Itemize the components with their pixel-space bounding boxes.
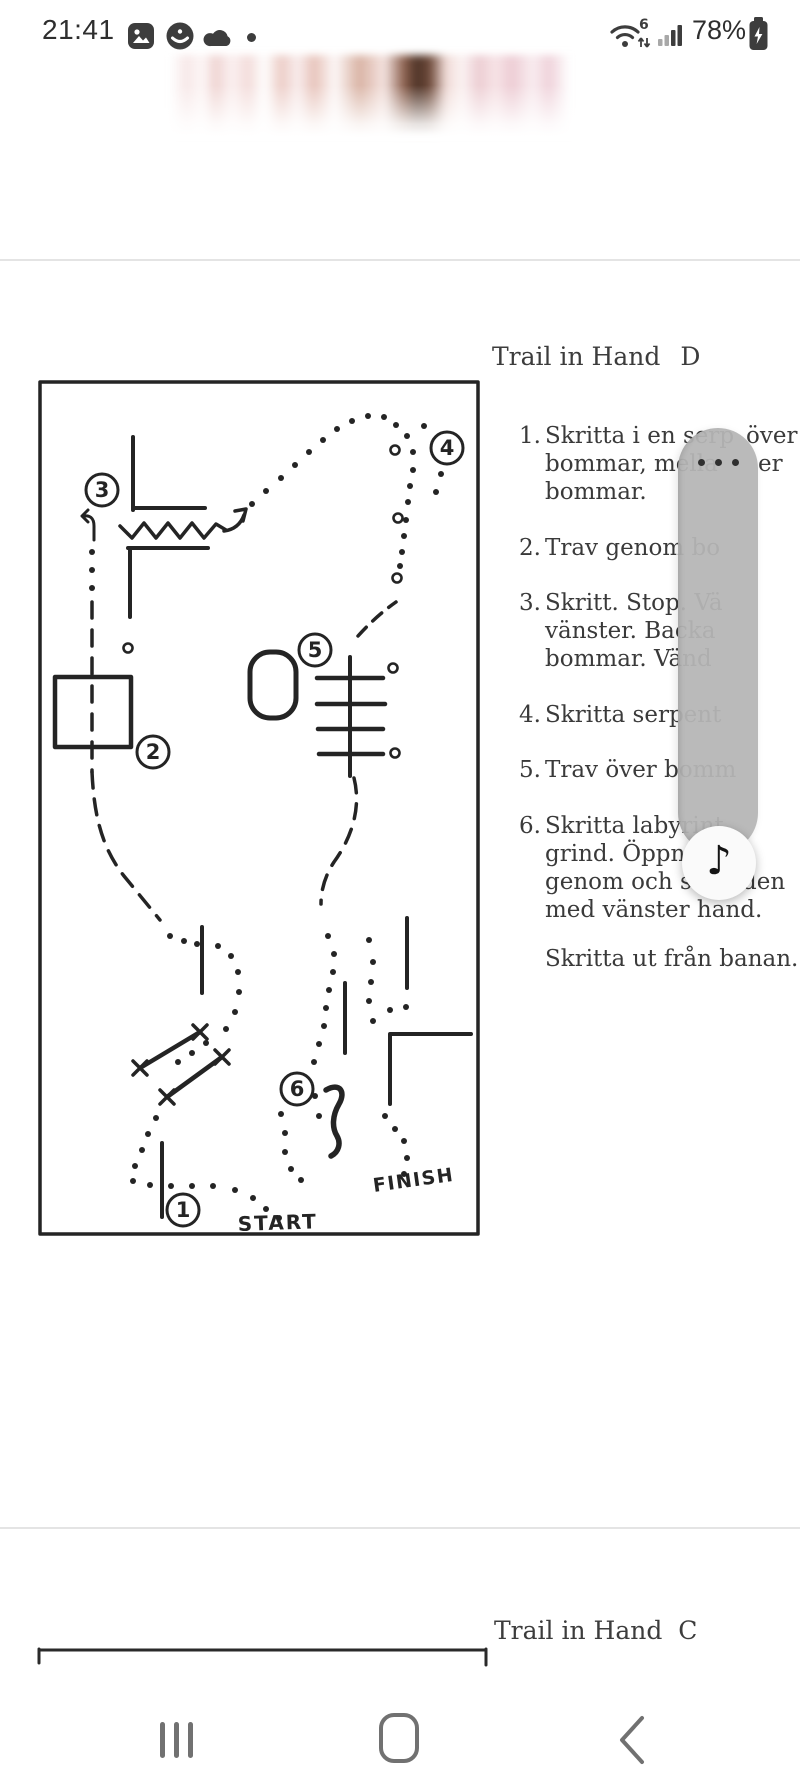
start-label: START (237, 1209, 318, 1236)
photo-fade (150, 55, 602, 141)
obstacle-marker-1: 1 (167, 1194, 199, 1226)
page2-title: Trail in Hand C (494, 1616, 697, 1645)
course-map: 123456 START FINISH (38, 380, 480, 1237)
map-obstacle-5-poles (250, 652, 385, 776)
map-cone-markers (124, 446, 403, 758)
page-title-variant: D (680, 342, 700, 371)
instruction-number: 3. (511, 589, 541, 617)
signal-strength-icon (658, 23, 686, 51)
battery-charging-icon (748, 16, 770, 56)
section-divider (0, 259, 800, 261)
instruction-line: med vänster hand. (545, 896, 762, 924)
map-obstacle-1-poles (133, 1025, 229, 1104)
page2-title-text: Trail in Hand (494, 1616, 662, 1645)
instruction-number: 6. (511, 812, 541, 840)
nav-back-button[interactable] (612, 1712, 648, 1768)
page-title: Trail in HandD (492, 342, 700, 371)
instruction-number: 4. (511, 701, 541, 729)
phone-screen: 21:41 6 78% (0, 0, 800, 1779)
svg-text:6: 6 (639, 17, 649, 33)
svg-text:2: 2 (146, 740, 161, 764)
floating-widget-pill[interactable] (678, 428, 758, 853)
svg-text:1: 1 (176, 1198, 191, 1222)
map-border (40, 382, 478, 1234)
svg-text:3: 3 (95, 478, 110, 502)
page-title-text: Trail in Hand (492, 342, 660, 371)
battery-percent: 78% (692, 15, 746, 46)
nav-home-button[interactable] (379, 1713, 419, 1763)
obstacle-marker-2: 2 (137, 736, 169, 768)
obstacle-marker-3: 3 (86, 474, 118, 506)
more-options-icon[interactable] (698, 459, 742, 466)
obstacle-marker-5: 5 (299, 634, 331, 666)
music-widget-button[interactable]: ♪ (682, 826, 756, 900)
instruction-outro: Skritta ut från banan. (545, 946, 798, 972)
svg-text:4: 4 (440, 436, 455, 460)
more-notifications-dot-icon (247, 33, 256, 42)
svg-text:6: 6 (290, 1077, 305, 1101)
cloud-notification-icon (202, 26, 236, 54)
music-note-icon: ♪ (706, 838, 732, 884)
page2-map-top-border (36, 1646, 490, 1668)
instruction-fragment: över (746, 422, 797, 450)
page-break-divider (0, 1527, 800, 1529)
wifi6-icon: 6 (610, 16, 652, 56)
instruction-fragment: er (758, 450, 783, 478)
gallery-notification-icon (128, 23, 155, 54)
instruction-line: bommar. (545, 478, 647, 506)
page2-title-variant: C (678, 1616, 697, 1645)
obstacle-marker-6: 6 (281, 1073, 313, 1105)
instruction-number: 1. (511, 422, 541, 450)
finish-label: FINISH (372, 1164, 456, 1197)
instruction-number: 5. (511, 756, 541, 784)
svg-text:5: 5 (308, 638, 323, 662)
map-obstacle-3-poles (82, 437, 246, 617)
nav-recents-button[interactable] (160, 1722, 193, 1758)
map-obstacle-6-gate (326, 1087, 342, 1156)
app-notification-icon (166, 22, 195, 55)
obstacle-marker-4: 4 (431, 432, 463, 464)
map-obstacle-markers: 123456 (86, 432, 463, 1226)
instruction-number: 2. (511, 534, 541, 562)
status-time: 21:41 (42, 14, 115, 46)
